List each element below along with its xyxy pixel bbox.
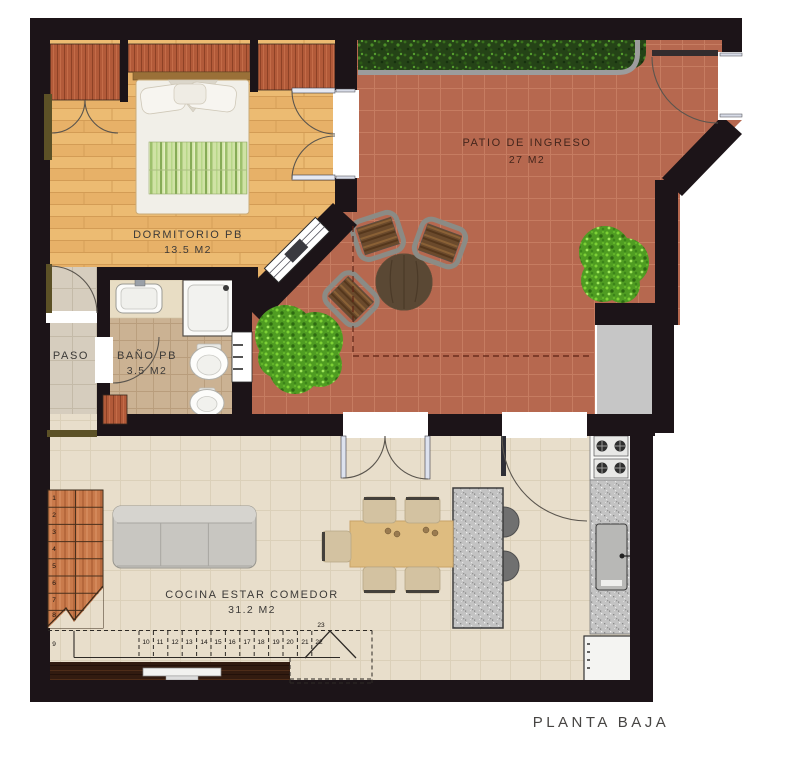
label-dormitorio-area: 13.5 M2 <box>164 244 212 256</box>
label-bano-area: 3.5 M2 <box>127 365 168 377</box>
fridge <box>584 636 631 684</box>
step-number: 7 <box>52 597 56 604</box>
bed-headboard <box>133 72 252 80</box>
step-number: 9 <box>52 641 56 648</box>
patio-round-table <box>376 254 432 310</box>
label-paso: PASO <box>53 350 89 362</box>
label-patio-area: 27 M2 <box>509 154 545 166</box>
floor-plan-page: 1 2 3 4 5 6 7 8 9 10 11 12 13 14 15 16 1… <box>0 0 801 757</box>
step-number: 18 <box>257 639 265 646</box>
french-door-leaf <box>292 175 335 180</box>
bed-blanket <box>149 142 247 194</box>
bath-door-opening <box>95 337 113 383</box>
floor-plan-drawing: 1 2 3 4 5 6 7 8 9 10 11 12 13 14 15 16 1… <box>0 0 801 757</box>
stove <box>590 432 632 480</box>
step-number: 8 <box>52 612 56 619</box>
step-number: 19 <box>272 639 280 646</box>
kitchen-sink <box>596 524 630 590</box>
step-number: 10 <box>142 639 150 646</box>
paso-opening <box>46 311 97 323</box>
dining-table <box>350 521 453 567</box>
step-number: 1 <box>52 495 56 502</box>
step-number: 16 <box>228 639 236 646</box>
bedroom-patio-opening <box>333 90 359 178</box>
entry-door-leaf <box>652 50 718 56</box>
step-number: 15 <box>214 639 222 646</box>
closet-left <box>50 44 120 100</box>
step-number: 2 <box>52 512 56 519</box>
step-number: 20 <box>286 639 294 646</box>
sofa <box>113 506 256 568</box>
closet-head <box>128 44 250 72</box>
paso-door-leaf <box>46 264 52 313</box>
label-dormitorio: DORMITORIO PB <box>133 229 243 241</box>
label-cocina-area: 31.2 M2 <box>228 604 276 616</box>
bathroom-window <box>232 332 252 382</box>
entry-opening <box>718 52 744 120</box>
step-number: 4 <box>52 546 56 553</box>
kitchen-island <box>453 488 503 628</box>
kitchen-french-opening <box>343 412 428 438</box>
kitchen-door-leaf <box>341 436 346 478</box>
step-number: 22 <box>315 639 323 646</box>
step-number: 11 <box>157 639 164 646</box>
tv <box>143 668 221 676</box>
step-number: 14 <box>200 639 208 646</box>
hedge-plants <box>358 40 646 70</box>
label-bano: BAÑO PB <box>117 349 177 362</box>
bath-cabinet <box>103 395 127 424</box>
step-number: 13 <box>185 639 193 646</box>
step-number: 3 <box>52 529 56 536</box>
french-door-leaf <box>292 88 335 93</box>
label-cocina: COCINA ESTAR COMEDOR <box>165 589 339 601</box>
kitchen-door-leaf <box>425 436 430 479</box>
shower-drain <box>223 285 229 291</box>
closet-right <box>258 44 335 90</box>
window-jamb <box>44 94 52 160</box>
step-number: 5 <box>52 563 56 570</box>
hedge <box>358 40 646 73</box>
step-number: 21 <box>301 639 309 646</box>
step-number: 23 <box>317 622 325 629</box>
step-number: 17 <box>243 639 251 646</box>
label-patio: PATIO DE INGRESO <box>462 137 591 149</box>
paso-lintel <box>47 430 97 437</box>
step-number: 6 <box>52 580 56 587</box>
pillow-small <box>174 84 206 104</box>
bed <box>133 72 252 214</box>
bath-faucet <box>135 279 145 286</box>
step-number: 12 <box>171 639 179 646</box>
kitchen-single-opening <box>502 412 587 438</box>
plan-title: PLANTA BAJA <box>533 714 670 731</box>
